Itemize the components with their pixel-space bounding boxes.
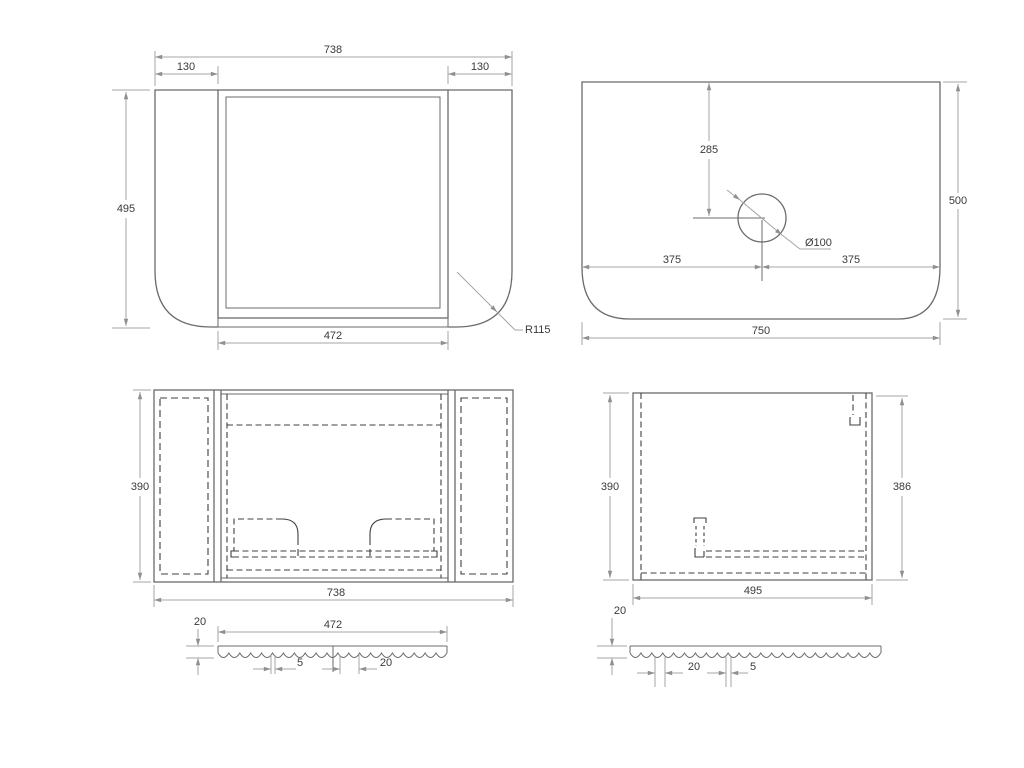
dim-detail-side-groove: 5 [707, 657, 756, 687]
detail-front-panel-flutes [218, 653, 447, 658]
dim-front-opening-width: 472 [218, 330, 448, 350]
dim-side-height-left: 390 [601, 393, 629, 580]
dim-label-front-r115: R115 [525, 324, 550, 336]
dim-detail-side-thickness: 20 [597, 605, 627, 675]
dim-side-depth: 495 [633, 584, 872, 605]
front-cabinet-box [218, 90, 448, 318]
detail-side-panel: 20 20 5 [597, 605, 881, 687]
detail-front-panel: 472 20 5 20 [186, 616, 447, 675]
dim-top-depth: 500 [943, 82, 967, 319]
back-right-bracket-hidden [386, 519, 434, 551]
dim-label-side-495: 495 [744, 585, 762, 597]
dim-front-right-panel: 130 [448, 61, 512, 84]
dim-label-detail-side-5: 5 [750, 661, 756, 673]
top-countertop-outline [582, 82, 940, 319]
dim-side-height-right: 386 [876, 396, 911, 580]
side-outline [633, 393, 872, 580]
back-box-top-bottom [221, 394, 448, 578]
dim-label-top-750: 750 [752, 325, 770, 337]
dim-label-top-d100: Ø100 [805, 237, 832, 249]
dim-label-detail-front-20: 20 [380, 657, 392, 669]
dim-front-left-panel: 130 [155, 61, 218, 84]
back-left-panel-hidden [160, 398, 208, 574]
back-view: 390 738 [131, 390, 513, 607]
dim-label-side-390: 390 [601, 481, 619, 493]
dim-front-overall-width: 738 [155, 44, 512, 86]
dim-label-detail-front-thk: 20 [194, 616, 206, 628]
back-panel-edges [214, 390, 455, 582]
dim-label-top-375-right: 375 [842, 254, 860, 266]
dim-label-front-495: 495 [117, 203, 135, 215]
back-box-hidden-lines [227, 394, 441, 578]
dim-detail-front-thickness: 20 [186, 616, 214, 675]
dim-label-detail-front-5: 5 [297, 657, 303, 669]
dim-detail-front-width: 472 [218, 619, 447, 642]
side-hidden-lines [641, 393, 866, 580]
dim-label-front-472: 472 [324, 330, 342, 342]
dim-label-front-130-left: 130 [177, 61, 195, 73]
dim-detail-side-pitch: 20 [637, 657, 700, 687]
dim-top-hole-offset-right: 375 [762, 254, 940, 267]
dim-label-detail-side-thk: 20 [614, 605, 626, 617]
back-rail-hidden [233, 551, 435, 557]
top-hole-centerlines [693, 218, 765, 281]
front-bottom-strip [218, 318, 448, 327]
side-mid-bracket-hidden [696, 526, 704, 546]
back-rail-end-hooks [231, 551, 437, 557]
side-top-bracket [850, 417, 860, 425]
dim-back-height: 390 [131, 390, 151, 582]
dim-label-back-738: 738 [327, 587, 345, 599]
detail-side-panel-edges [630, 646, 881, 653]
dim-top-hole-offset-left: 375 [582, 254, 762, 267]
technical-drawing-sheet: 738 130 130 495 472 R11 [0, 0, 1024, 768]
dim-front-height: 495 [112, 90, 150, 328]
front-left-panel [155, 90, 218, 327]
dim-back-width: 738 [154, 585, 513, 607]
drawing-canvas: 738 130 130 495 472 R11 [0, 0, 1024, 768]
dim-label-back-390: 390 [131, 481, 149, 493]
back-left-bracket-hidden [234, 519, 282, 551]
dim-label-top-285: 285 [700, 144, 718, 156]
dim-label-detail-side-20: 20 [688, 661, 700, 673]
dim-label-top-375-left: 375 [663, 254, 681, 266]
side-mid-bracket-hooks [694, 518, 706, 557]
front-cabinet-inner-frame [226, 97, 440, 308]
dim-label-front-738: 738 [324, 44, 342, 56]
detail-side-panel-flutes [630, 653, 881, 658]
front-view: 738 130 130 495 472 R11 [112, 44, 550, 350]
front-right-panel [448, 90, 512, 327]
dim-label-top-500: 500 [949, 195, 967, 207]
side-view: 390 386 495 [601, 393, 911, 605]
dim-top-width: 750 [582, 322, 940, 345]
side-rail-hidden [706, 551, 866, 557]
dim-label-front-130-right: 130 [471, 61, 489, 73]
back-right-panel-hidden [461, 398, 507, 574]
dim-label-side-386: 386 [893, 481, 911, 493]
dim-top-hole-offset-back: 285 [700, 83, 718, 216]
dim-top-hole-diameter: Ø100 [727, 190, 832, 249]
dim-label-detail-front-472: 472 [324, 619, 342, 631]
top-view: 285 Ø100 375 375 500 750 [582, 82, 967, 345]
